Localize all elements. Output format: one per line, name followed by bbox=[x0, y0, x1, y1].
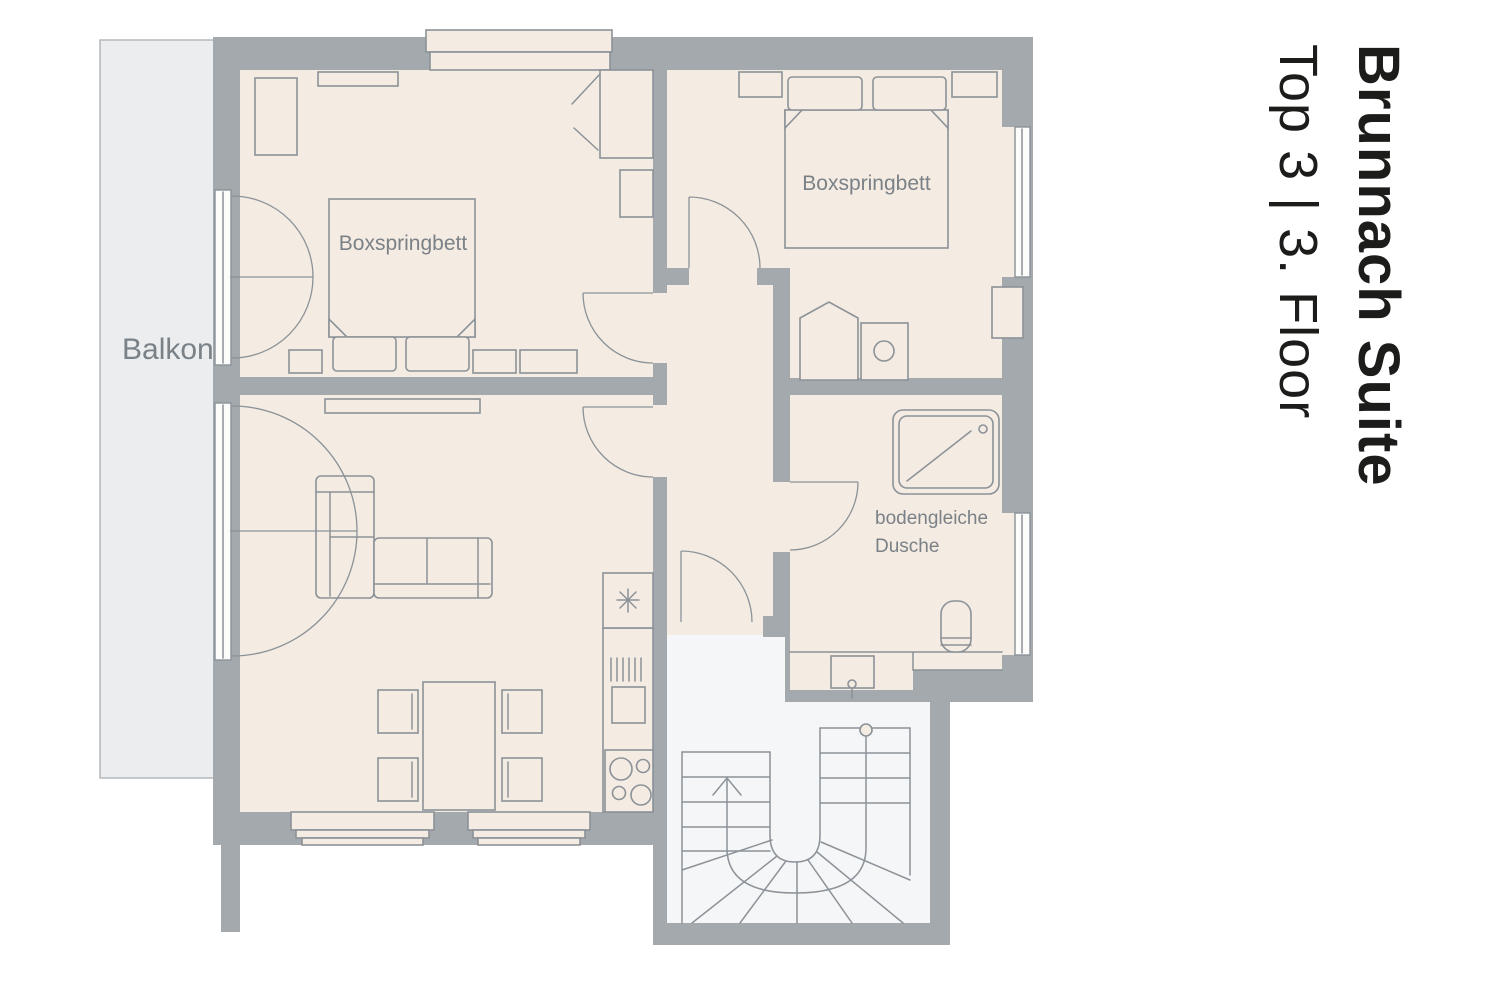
balcony-french-door-living bbox=[215, 403, 231, 660]
floor-subtitle: Top 3 | 3. Floor bbox=[1266, 44, 1330, 644]
bedroom1-bed-label: Boxspringbett bbox=[330, 232, 476, 256]
closet-symbol bbox=[800, 302, 858, 380]
window-bedroom1-top bbox=[426, 30, 612, 70]
kitchen-symbols bbox=[603, 573, 653, 812]
dining-table-symbol bbox=[423, 682, 495, 810]
nightstand-symbol bbox=[952, 72, 997, 97]
shower-label: bodengleiche Dusche bbox=[875, 505, 988, 561]
wall-stub-bottom-left bbox=[221, 845, 240, 932]
wall-shaft bbox=[992, 287, 1023, 338]
balcony-area bbox=[100, 40, 215, 778]
bench-symbol bbox=[473, 350, 516, 373]
window-living-bottom-left bbox=[291, 812, 434, 845]
shower-symbol bbox=[893, 410, 999, 494]
balcony-label: Balkon bbox=[122, 333, 214, 367]
toilet-symbol bbox=[941, 601, 971, 652]
plan-title-block: Brunnach Suite Top 3 | 3. Floor bbox=[1266, 44, 1412, 644]
fridge-symbol bbox=[603, 573, 653, 628]
washing-machine-symbol bbox=[861, 323, 908, 380]
balcony-french-door-bedroom1 bbox=[215, 190, 231, 365]
window-bathroom-right bbox=[1015, 513, 1030, 655]
freezer-snowflake-icon bbox=[617, 589, 639, 612]
nightstand-symbol bbox=[289, 350, 322, 373]
window-bedroom2-right bbox=[1015, 127, 1030, 277]
entrance-jamb bbox=[763, 616, 787, 637]
bench-symbol bbox=[520, 350, 577, 373]
sideboard-symbol bbox=[325, 399, 480, 413]
floorplan-page: Balkon Boxspringbett Boxspringbett boden… bbox=[0, 0, 1500, 1000]
stove-symbol bbox=[605, 750, 653, 812]
wardrobe-symbol bbox=[255, 78, 297, 155]
shelf-symbol bbox=[318, 72, 398, 86]
bath-corner-wall bbox=[913, 670, 1002, 702]
nightstand-symbol bbox=[739, 72, 782, 97]
bedroom2-bed-label: Boxspringbett bbox=[785, 172, 948, 196]
hall-floor bbox=[667, 285, 773, 635]
window-living-bottom-right bbox=[468, 812, 590, 845]
suite-name-title: Brunnach Suite bbox=[1344, 44, 1412, 644]
